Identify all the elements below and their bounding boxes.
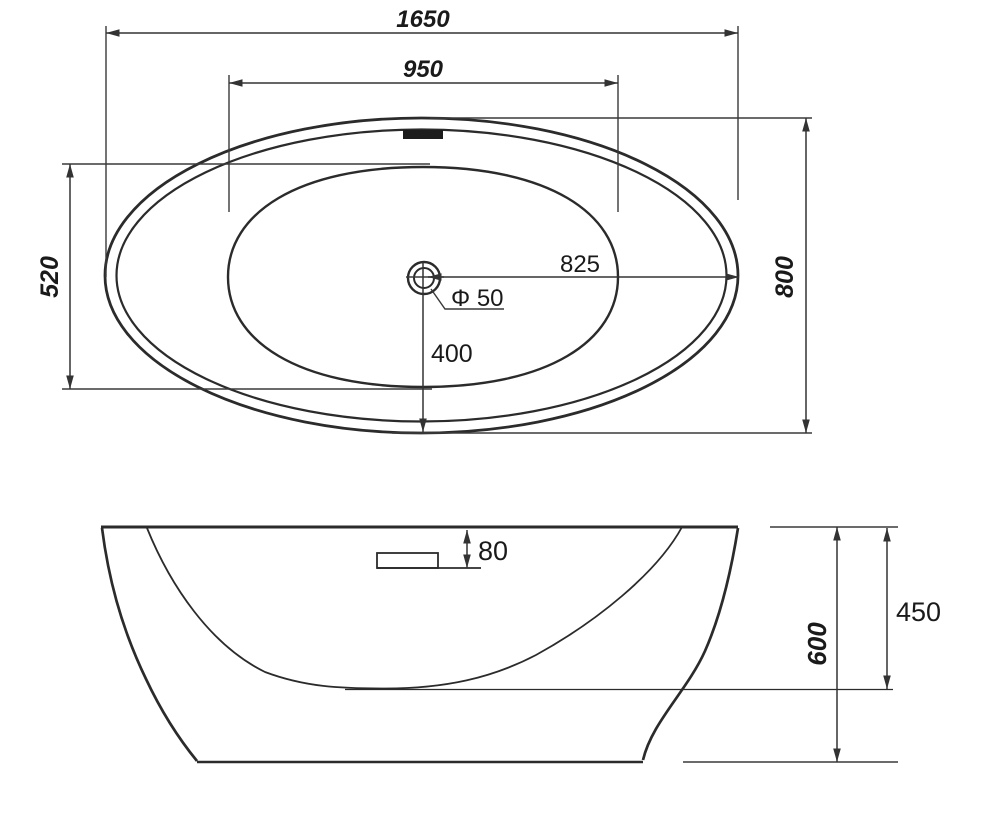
- overflow-slot-elevation: [377, 553, 438, 568]
- inner-basin-profile: [147, 527, 682, 689]
- plan-view: [105, 118, 738, 433]
- dim-label-450: 450: [896, 597, 941, 627]
- dim-label-80: 80: [478, 536, 508, 566]
- bathtub-technical-drawing: 1650 950 520 800 825 400 Φ 50: [0, 0, 1000, 819]
- elevation-dimensions: 80 600 450: [467, 527, 941, 762]
- dim-label-950: 950: [403, 56, 444, 83]
- outer-profile-left: [102, 528, 197, 761]
- dim-label-600: 600: [802, 622, 832, 666]
- dim-label-825: 825: [560, 251, 600, 278]
- drain-outer: [408, 262, 440, 294]
- dim-label-400: 400: [431, 340, 473, 368]
- tub-outer-rim: [105, 118, 738, 433]
- dim-label-drain-diameter: Φ 50: [451, 285, 504, 312]
- plan-dimensions: 1650 950 520 800 825 400 Φ 50: [36, 6, 812, 433]
- tub-inner-rim: [117, 130, 727, 422]
- dim-label-800: 800: [771, 256, 799, 298]
- dim-label-520: 520: [36, 256, 64, 298]
- dim-label-1650: 1650: [396, 6, 450, 33]
- drawing-canvas: 1650 950 520 800 825 400 Φ 50: [0, 0, 1000, 819]
- overflow-slot-plan: [403, 130, 443, 139]
- drain-inner: [414, 268, 434, 288]
